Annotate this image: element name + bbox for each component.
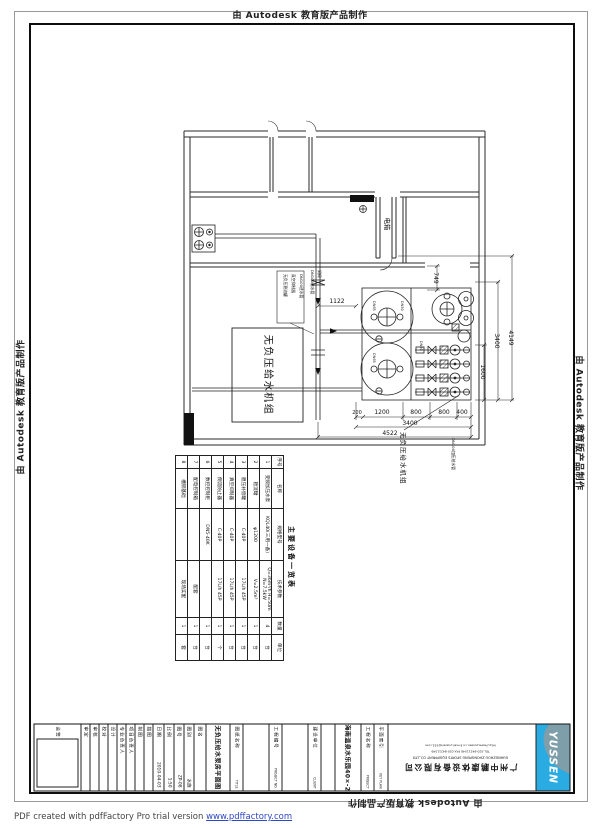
cell-label-en: PROJECT NO.	[273, 767, 277, 790]
titleblock-cell-empty	[242, 724, 268, 790]
pdf-footer-text: PDF created with pdfFactory Pro trial ve…	[14, 812, 206, 822]
titleblock-cell-校对: 校对	[98, 724, 107, 790]
titleblock-cell-logo: YUSSEN	[535, 724, 569, 790]
table-cell: 套	[176, 635, 188, 661]
pdffactory-link[interactable]: www.pdffactory.com	[206, 812, 292, 822]
table-cell: 真空抑制器	[224, 469, 236, 509]
table-cell: 1	[224, 618, 236, 635]
svg-text:无负压给水机组: 无负压给水机组	[399, 432, 408, 485]
svg-text:200: 200	[352, 410, 362, 416]
table-cell: φ1200	[248, 509, 260, 561]
table-cell: 变频加压水泵	[260, 469, 272, 509]
table-cell	[188, 509, 200, 561]
titleblock-cell-审核: 审核	[89, 724, 98, 790]
table-cell: 1	[188, 618, 200, 635]
cell-title-text: 海南温泉水乐园40×-20游泳池	[343, 724, 352, 790]
svg-text:749: 749	[432, 272, 439, 284]
svg-text:1200: 1200	[374, 409, 389, 416]
cell-label: 描图	[145, 724, 151, 737]
cell-label: 图别	[186, 724, 192, 737]
table-cell: 倒流防止器	[212, 469, 224, 509]
dimension-text: 1122 200 1200 800 800 400 3400 4522 749 …	[329, 272, 514, 437]
table-cell: 台	[200, 635, 212, 661]
titleblock-cell-项目负责人: 项目负责人	[125, 724, 134, 790]
svg-text:无负压稳流罐: 无负压稳流罐	[283, 274, 288, 297]
cell-value: 水施	[186, 778, 192, 790]
electrical-room-label: 电箱	[383, 218, 392, 232]
table-cell: 台	[188, 635, 200, 661]
table-cell: 1	[260, 456, 272, 469]
svg-text:DN50: DN50	[419, 341, 423, 351]
table-cell: 8	[176, 456, 188, 469]
cell-label-en: KEY PLAN	[379, 773, 383, 790]
cell-label: 建设单位	[311, 724, 317, 748]
titleblock-cell-工程名称: 工程名称PROJECT	[360, 724, 373, 790]
table-cell: V=2.5m³	[248, 561, 260, 618]
titleblock-cell-图纸名称: 图纸名称TITLE	[229, 724, 242, 790]
svg-text:1600: 1600	[479, 364, 486, 379]
pipe-notes-box: 无负压稳流罐 真空抑制器 DN100进水管	[277, 271, 314, 334]
cell-label: 图号	[176, 724, 182, 737]
svg-text:4522: 4522	[382, 430, 397, 437]
unit-label: 无负压给水机组	[262, 335, 275, 416]
titleblock-cell-日期: 日期2010-04-03	[152, 724, 163, 790]
table-row: 1变频加压水泵KQL40(三用一备)Q=36m³/h H=50m N=7.5kW…	[260, 456, 272, 661]
titleblock-cell-big: 无负压给水泵房平面图	[205, 724, 229, 790]
table-cell: 1	[236, 618, 248, 635]
table-cell: 1	[200, 618, 212, 635]
cell-label-en: TITLE	[234, 779, 238, 790]
stabilizing-tank-2	[361, 343, 413, 395]
table-cell: 17L/h 45P	[236, 561, 248, 618]
table-cell: 配电控制箱	[188, 469, 200, 509]
table-row: 4真空抑制器C-40P17L/h 45P1台	[224, 456, 236, 661]
table-cell: 6	[200, 456, 212, 469]
table-cell: KQL40(三用一备)	[260, 509, 272, 561]
water-meter-box	[192, 225, 215, 252]
titleblock-cell-会签: 会签	[34, 724, 80, 790]
equipment-schedule-title: 主要设备一览表	[284, 455, 298, 660]
title-block: YUSSEN广州中鹏康体设备有限公司GUANGZHOU ZHONGPENG SP…	[33, 723, 570, 791]
company-contact-block: 广州中鹏康体设备有限公司GUANGZHOU ZHONGPENG SPORTS E…	[387, 724, 535, 790]
table-cell: 3	[236, 456, 248, 469]
table-cell: 名称	[272, 469, 284, 509]
table-cell: 17L/h 45P	[212, 561, 224, 618]
port-labels: DN65 DN50 DN65 DN50	[372, 301, 423, 363]
cell-label: 平面索引	[378, 724, 384, 748]
yussen-logo-text: YUSSEN	[547, 731, 559, 784]
wall-lintel	[350, 195, 374, 202]
cell-label: 设计	[109, 724, 115, 737]
table-cell: 现场实配	[176, 561, 188, 618]
company-phone: TEL:020-84211548 FAX:020-84211549	[431, 750, 489, 754]
titleblock-cell-设计: 设计	[107, 724, 116, 790]
table-cell: 配套	[188, 561, 200, 618]
cell-value: 2010-04-03	[156, 761, 161, 790]
svg-text:DN65: DN65	[372, 301, 376, 311]
pump-room-plan: 无负压给水机组 电箱 无负压稳流罐 真空抑制器 DN100进水管 DN100给水…	[0, 0, 600, 828]
titleblock-cell-empty	[281, 724, 307, 790]
table-row: 7配电控制箱配套1台	[188, 456, 200, 661]
sign-box	[36, 738, 78, 787]
table-cell: 1	[248, 618, 260, 635]
cell-label: 工程名称	[364, 724, 370, 748]
titleblock-cell-empty	[320, 724, 334, 790]
table-header-row: 序号名称规格型号技术参数数量单位	[272, 456, 284, 661]
svg-text:DN100加压给水管: DN100加压给水管	[451, 438, 456, 470]
cell-label: 会签	[54, 724, 60, 737]
cell-label: 校对	[100, 724, 106, 737]
cell-label: 审核	[91, 724, 97, 737]
cell-label-en: CLIENT	[312, 777, 316, 790]
titleblock-cell-建设单位: 建设单位CLIENT	[307, 724, 320, 790]
company-name-en: GUANGZHOU ZHONGPENG SPORTS EQUIPMENT CO.…	[412, 756, 507, 760]
svg-text:3400: 3400	[493, 333, 500, 348]
flow-arrows	[315, 298, 337, 375]
booster-pumps	[415, 345, 470, 397]
equipment-schedule: 主要设备一览表 序号名称规格型号技术参数数量单位1变频加压水泵KQL40(三用一…	[173, 455, 298, 660]
cell-label: 项目负责人	[127, 724, 133, 754]
table-cell: 单位	[272, 635, 284, 661]
pdf-footer: PDF created with pdfFactory Pro trial ve…	[14, 812, 292, 822]
table-cell	[200, 561, 212, 618]
table-cell: 5	[212, 456, 224, 469]
company-name: 广州中鹏康体设备有限公司	[403, 762, 517, 773]
table-cell: 数控控制柜	[200, 469, 212, 509]
table-cell: Q=36m³/h H=50m N=7.5kW	[260, 561, 272, 618]
titleblock-cell-审定: 审定	[80, 724, 89, 790]
cell-label-en: PROJECT	[365, 774, 369, 790]
table-cell: 槽钢基础	[176, 469, 188, 509]
titleblock-cell-平面索引: 平面索引KEY PLAN	[373, 724, 387, 790]
svg-text:DN50: DN50	[400, 301, 404, 311]
cell-label: 审定	[82, 724, 88, 737]
table-row: 5倒流防止器C-40P17L/h 45P1个	[212, 456, 224, 661]
svg-text:800: 800	[410, 409, 422, 416]
table-cell	[176, 509, 188, 561]
cell-label: 比例	[166, 724, 172, 737]
table-cell: 4	[260, 618, 272, 635]
cell-title-text: 无负压给水泵房平面图	[213, 724, 222, 790]
table-cell: 1	[176, 618, 188, 635]
titleblock-cell-比例: 比例1:50	[163, 724, 173, 790]
table-cell: 个	[212, 635, 224, 661]
table-row: 6数控控制柜DN5-40K1台	[200, 456, 212, 661]
table-cell: 2	[248, 456, 260, 469]
table-cell: 台	[236, 635, 248, 661]
table-cell: 技术参数	[272, 561, 284, 618]
table-cell: 规格型号	[272, 509, 284, 561]
table-cell: 稳流罐	[248, 469, 260, 509]
yussen-logo: YUSSEN	[536, 724, 569, 790]
svg-text:800: 800	[438, 409, 450, 416]
titleblock-cell-专业负责人: 专业负责人	[116, 724, 125, 790]
table-cell: C-40P	[212, 509, 224, 561]
table-cell: 17L/h 45P	[224, 561, 236, 618]
svg-text:400: 400	[456, 409, 468, 416]
table-cell: 数量	[272, 618, 284, 635]
titleblock-cell-制图: 制图	[134, 724, 143, 790]
svg-text:DN65: DN65	[372, 353, 376, 363]
table-row: 2稳流罐φ1200V=2.5m³1台	[248, 456, 260, 661]
titleblock-cell-图号: 图号ZP-08	[173, 724, 183, 790]
table-cell: 7	[188, 456, 200, 469]
table-cell: C-40P	[224, 509, 236, 561]
table-row: 3稳压补偿罐C-40P17L/h 45P1台	[236, 456, 248, 661]
titleblock-cell-big: 海南温泉水乐园40×-20游泳池	[334, 724, 360, 790]
cell-label: 工程编号	[272, 724, 278, 748]
equipment-schedule-table: 序号名称规格型号技术参数数量单位1变频加压水泵KQL40(三用一备)Q=36m³…	[175, 455, 284, 661]
table-cell: 台	[224, 635, 236, 661]
table-cell: C-40P	[236, 509, 248, 561]
table-row: 8槽钢基础现场实配1套	[176, 456, 188, 661]
titleblock-cell-图名: 图名	[193, 724, 205, 790]
titleblock-cell-contact: 广州中鹏康体设备有限公司GUANGZHOU ZHONGPENG SPORTS E…	[387, 724, 535, 790]
table-cell: 序号	[272, 456, 284, 469]
stabilizing-tank-1	[361, 291, 413, 343]
cell-label: 图纸名称	[233, 724, 239, 748]
table-cell: 4	[224, 456, 236, 469]
wall-column	[184, 413, 194, 445]
cell-label: 图名	[197, 724, 203, 737]
cell-value: ZP-08	[176, 774, 181, 790]
cell-label: 专业负责人	[118, 724, 124, 754]
cell-value: 1:50	[166, 777, 171, 790]
svg-text:DN100给水管: DN100给水管	[310, 270, 315, 295]
table-cell: 稳压补偿罐	[236, 469, 248, 509]
ceiling-symbol	[360, 206, 367, 213]
titleblock-cell-工程编号: 工程编号PROJECT NO.	[268, 724, 281, 790]
svg-text:真空抑制器: 真空抑制器	[291, 274, 296, 293]
table-cell: 台	[260, 635, 272, 661]
titleblock-cell-描图: 描图	[143, 724, 152, 790]
company-web: http://www.yussen.cn E-mail:yussen@163.c…	[425, 744, 495, 748]
svg-text:3400: 3400	[402, 420, 417, 427]
table-cell: DN5-40K	[200, 509, 212, 561]
cell-label: 日期	[155, 724, 161, 737]
svg-text:闸阀: 闸阀	[317, 270, 322, 278]
pressure-tank-group	[432, 292, 474, 343]
table-cell: 1	[212, 618, 224, 635]
cell-label: 制图	[136, 724, 142, 737]
titleblock-cell-图别: 图别水施	[183, 724, 193, 790]
svg-text:4149: 4149	[507, 330, 514, 345]
svg-text:1122: 1122	[329, 298, 344, 305]
table-cell: 台	[248, 635, 260, 661]
svg-text:DN100进水管: DN100进水管	[299, 274, 304, 299]
pdf-page: 由 Autodesk 教育版产品制作 由 Autodesk 教育版产品制作 由 …	[0, 0, 600, 828]
